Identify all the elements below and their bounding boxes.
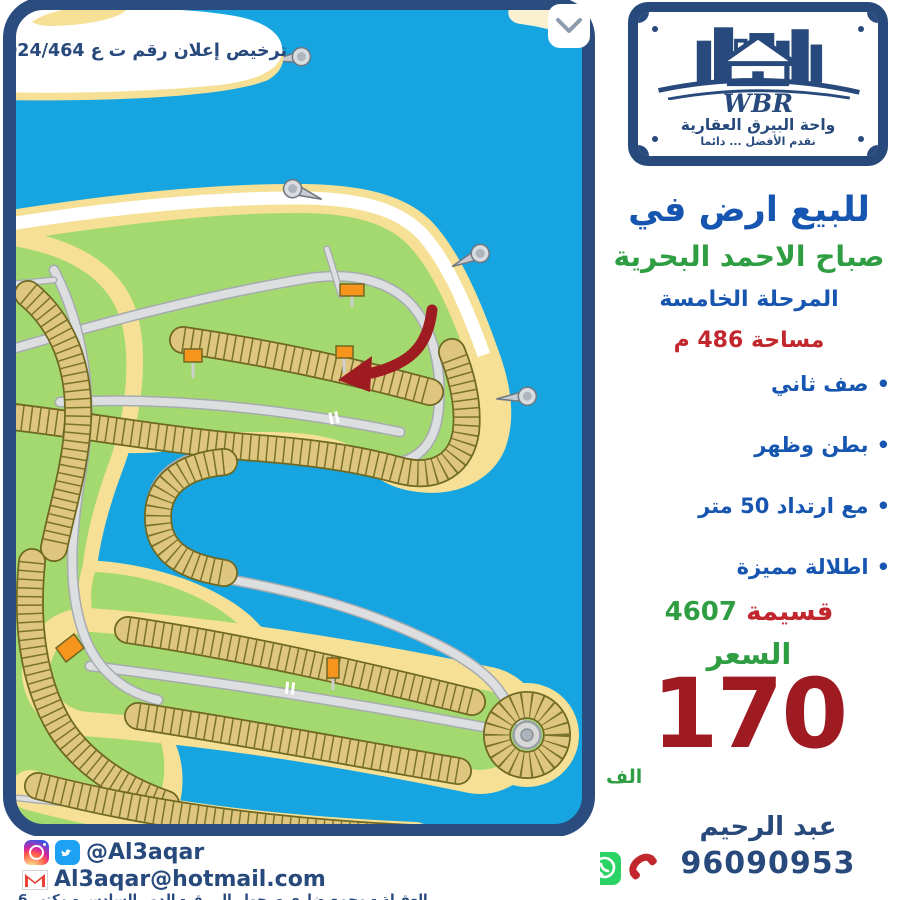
price-value: 170 (598, 664, 900, 764)
bullet-icon: • (877, 433, 890, 457)
collapse-tab[interactable] (548, 4, 590, 48)
phone-number: 96090953 (638, 846, 898, 881)
license-banner: ترخيص إعلان رقم ت ع 2024/464 (0, 6, 287, 101)
license-text: ترخيص إعلان رقم ت ع 2024/464 (0, 41, 287, 61)
logo-wbr: WBR (723, 92, 793, 116)
phone-icon (626, 850, 662, 886)
feature-item: •مع ارتداد 50 متر (605, 494, 890, 518)
twitter-icon[interactable] (55, 840, 80, 865)
feature-item: •اطلالة مميزة (605, 555, 890, 579)
gmail-icon[interactable] (22, 870, 48, 890)
feature-item: •بطن وظهر (605, 433, 890, 457)
price-unit: الف (606, 766, 642, 788)
map-svg: ترخيص إعلان رقم ت ع 2024/464 (0, 0, 600, 840)
instagram-icon[interactable] (24, 840, 49, 865)
logo-company-name: واحة البيرق العقارية (681, 116, 836, 135)
company-logo: WBR واحة البيرق العقارية نقدم الأفضل ...… (628, 2, 888, 166)
logo-slogan: نقدم الأفضل ... دائما (700, 135, 815, 149)
skyline-house-icon (642, 12, 874, 100)
office-address: العقيلة - مجمع ضاري - بجوار البيرق - الد… (18, 892, 448, 900)
bullet-icon: • (877, 494, 890, 518)
listing-area: مساحة 486 م (598, 328, 900, 353)
feature-item: •صف ثاني (605, 372, 890, 396)
social-handle[interactable]: @Al3aqar (86, 840, 204, 865)
plot-number-line: قسيمة 4607 (598, 597, 900, 627)
bullet-icon: • (877, 555, 890, 579)
listing-title: للبيع ارض في (598, 190, 900, 230)
plaque-ornament (636, 145, 649, 158)
roundabout (514, 722, 541, 749)
site-map: ترخيص إعلان رقم ت ع 2024/464 (0, 0, 600, 840)
bullet-icon: • (877, 372, 890, 396)
listing-location: صباح الاحمد البحرية (598, 240, 900, 273)
email-address[interactable]: Al3aqar@hotmail.com (54, 867, 326, 892)
feature-list: •صف ثاني •بطن وظهر •مع ارتداد 50 متر •اط… (605, 372, 890, 616)
real-estate-poster: ترخيص إعلان رقم ت ع 2024/464 (0, 0, 900, 900)
plaque-ornament (867, 145, 880, 158)
contact-footer: @Al3aqar Al3aqar@hotmail.com العقيلة - م… (0, 836, 600, 900)
info-panel: WBR واحة البيرق العقارية نقدم الأفضل ...… (598, 0, 900, 840)
listing-phase: المرحلة الخامسة (598, 287, 900, 312)
agent-name: عبد الرحيم (638, 812, 898, 842)
